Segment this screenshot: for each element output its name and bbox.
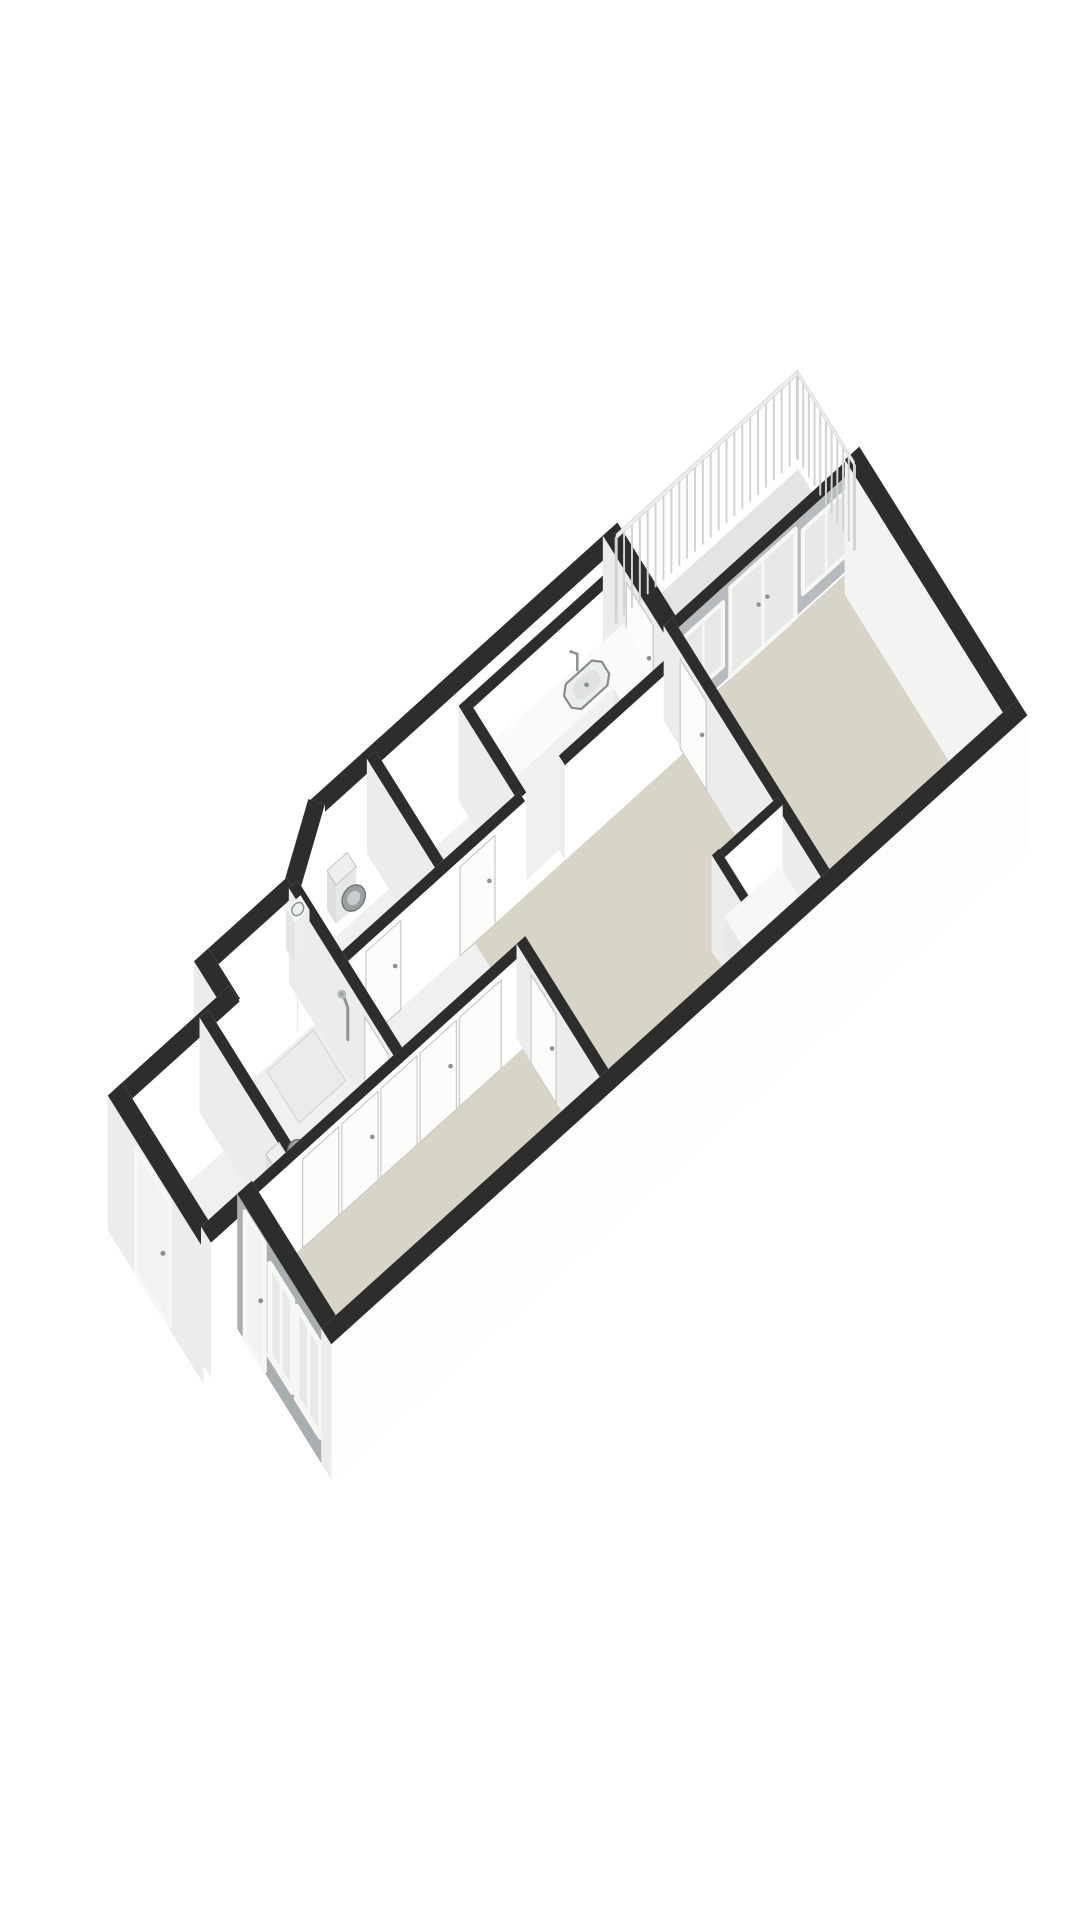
floorplan-3d-canvas — [0, 0, 1080, 1920]
exterior-door-decal — [245, 1211, 265, 1371]
fixture-wc-hand-basin — [286, 895, 310, 964]
floorplan-page — [0, 0, 1080, 1920]
